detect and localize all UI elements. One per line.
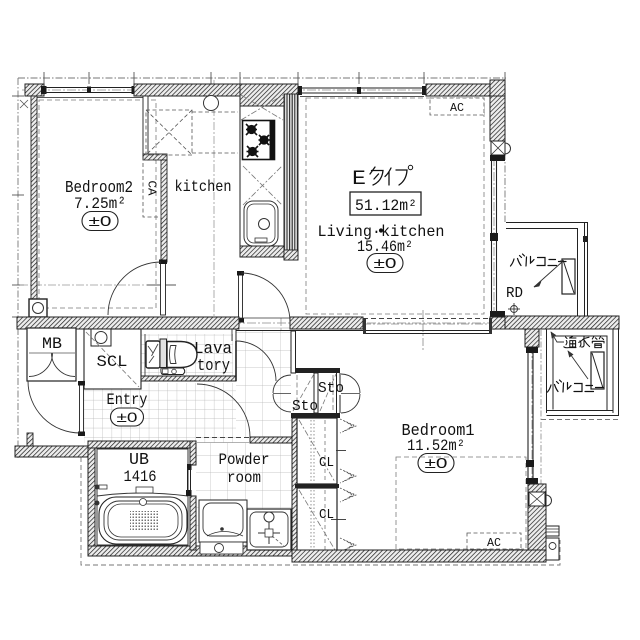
svg-text:±0: ±0	[374, 255, 397, 272]
svg-text:7.25m²: 7.25m²	[74, 195, 126, 213]
svg-text:Sto: Sto	[292, 398, 318, 415]
svg-text:±0: ±0	[117, 409, 138, 425]
svg-text:kitchen: kitchen	[175, 178, 232, 196]
svg-text:tory: tory	[197, 356, 230, 375]
svg-text:E: E	[352, 168, 366, 191]
svg-text:CA: CA	[145, 181, 158, 196]
svg-text:CL: CL	[319, 455, 334, 471]
svg-text:RD: RD	[506, 286, 523, 302]
svg-text:±0: ±0	[89, 213, 112, 230]
svg-text:CL: CL	[319, 507, 334, 523]
svg-text:11.52m²: 11.52m²	[407, 437, 465, 455]
svg-text:1416: 1416	[124, 468, 157, 486]
svg-text:AC: AC	[487, 537, 501, 550]
svg-text:Sto: Sto	[318, 380, 344, 397]
svg-text:51.12m²: 51.12m²	[355, 197, 417, 215]
svg-text:room: room	[227, 469, 261, 487]
svg-text:AC: AC	[450, 102, 464, 115]
svg-text:Powder: Powder	[219, 451, 270, 469]
svg-text:Entry: Entry	[107, 391, 148, 409]
svg-text:±0: ±0	[425, 455, 448, 472]
svg-text:MB: MB	[42, 335, 62, 353]
svg-text:SCL: SCL	[97, 353, 128, 371]
svg-text:UB: UB	[129, 450, 149, 469]
